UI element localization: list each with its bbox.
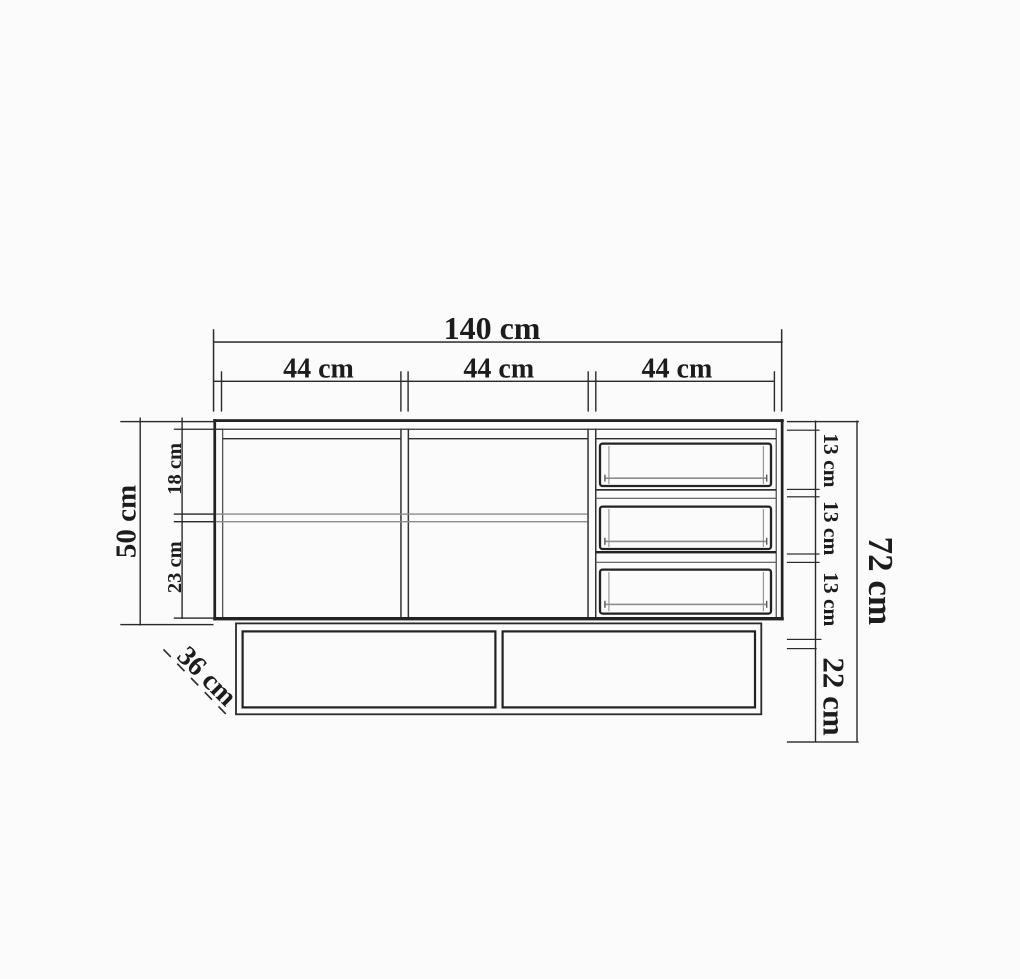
svg-text:72 cm: 72 cm — [861, 537, 900, 625]
svg-text:23 cm: 23 cm — [164, 541, 186, 593]
svg-text:50 cm: 50 cm — [111, 485, 143, 558]
svg-text:13 cm: 13 cm — [819, 433, 843, 487]
svg-text:44 cm: 44 cm — [283, 353, 354, 384]
svg-text:44 cm: 44 cm — [463, 353, 534, 384]
svg-text:140 cm: 140 cm — [444, 310, 541, 346]
svg-text:13 cm: 13 cm — [819, 501, 843, 555]
svg-text:13 cm: 13 cm — [819, 572, 843, 626]
svg-text:18 cm: 18 cm — [164, 443, 186, 495]
svg-text:44 cm: 44 cm — [642, 353, 713, 384]
svg-text:22 cm: 22 cm — [817, 657, 852, 736]
